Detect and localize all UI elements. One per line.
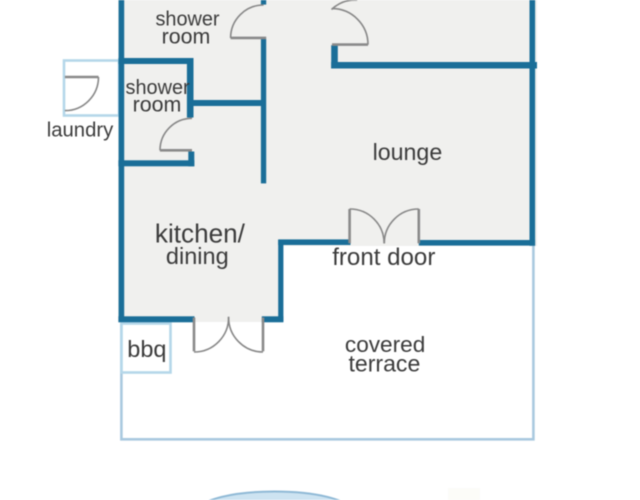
svg-text:lounge: lounge: [373, 139, 443, 165]
svg-text:laundry: laundry: [47, 120, 114, 142]
svg-text:bbq: bbq: [127, 336, 166, 362]
svg-text:room: room: [133, 93, 182, 117]
svg-text:room: room: [162, 24, 211, 48]
svg-text:terrace: terrace: [348, 351, 420, 377]
svg-text:front door: front door: [332, 244, 435, 271]
svg-text:dining: dining: [166, 243, 229, 269]
